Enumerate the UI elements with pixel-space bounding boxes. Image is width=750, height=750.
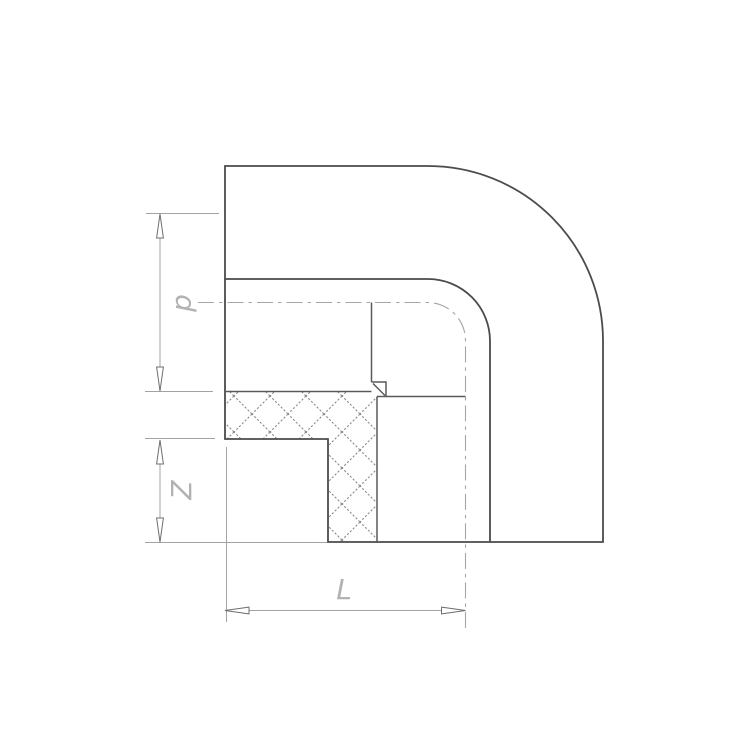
section-hatch-region	[225, 392, 377, 542]
dimension-arrow-z-top	[157, 440, 164, 464]
dimension-arrow-p-bottom	[157, 367, 164, 391]
dimension-label-l: L	[336, 573, 352, 606]
notch-chamfer-line	[373, 384, 385, 396]
drawing-canvas: p Z L	[0, 0, 750, 750]
elbow-fitting-drawing: p Z L	[0, 0, 750, 750]
dimension-arrow-z-bottom	[157, 518, 164, 542]
dimension-arrow-p-top	[157, 214, 164, 238]
dimension-arrow-l-left	[225, 607, 249, 614]
dimension-arrow-l-right	[442, 607, 466, 614]
dimension-label-z: Z	[165, 480, 198, 501]
elbow-outer-outline	[225, 166, 603, 542]
dimension-label-p: p	[165, 294, 198, 313]
